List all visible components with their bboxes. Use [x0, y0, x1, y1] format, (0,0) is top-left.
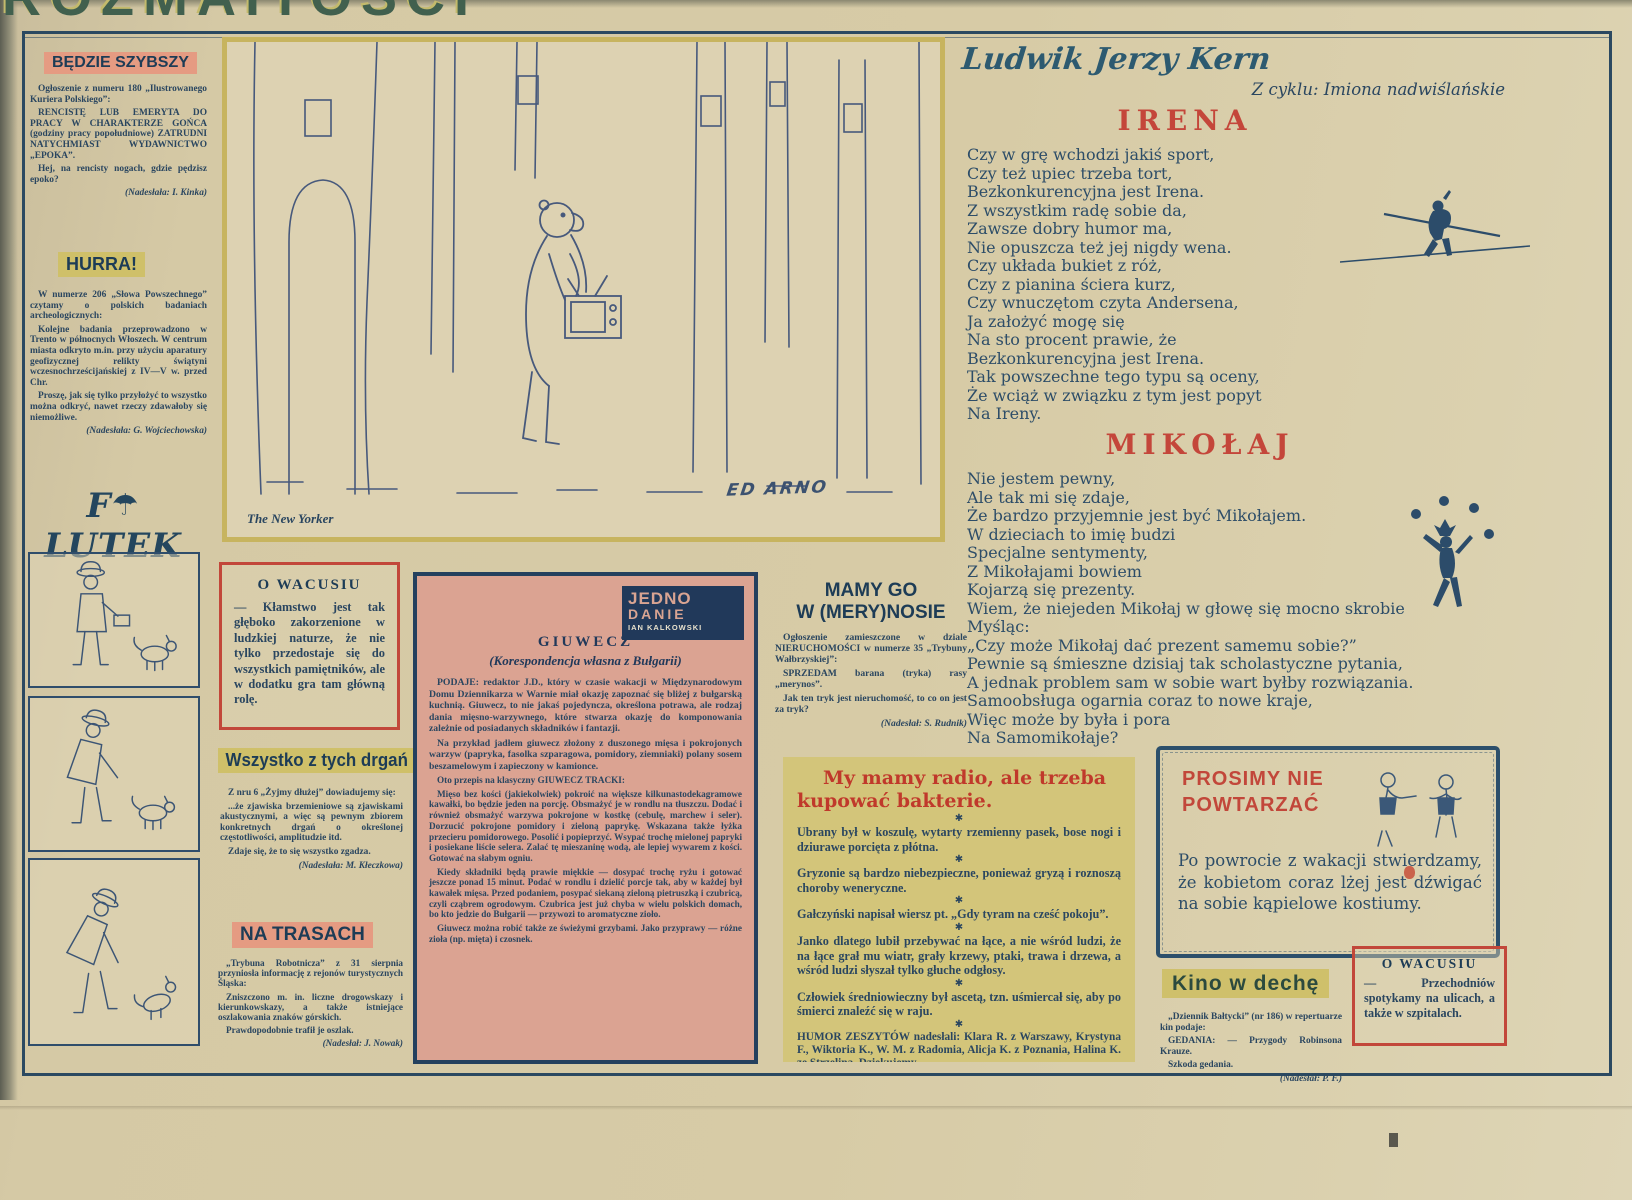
giuwecz-article-box: JEDNO DANIE IAN KALKOWSKI GIUWECZ (Kores… — [413, 572, 758, 1064]
comic-man-with-dog-illustration — [30, 554, 198, 686]
headline-band: NA TRASACH — [232, 922, 373, 948]
paragraph: Z nru 6 „Żyjmy dłużej” dowiadujemy się: — [220, 788, 403, 799]
kino-headline: Kino w dechę — [1162, 972, 1329, 996]
filutek-comic-panel-1 — [28, 552, 200, 688]
filutek-logo-text: F — [86, 486, 111, 526]
prosimy-text: Po powrocie z wakacji stwierdzamy, że ko… — [1178, 850, 1482, 915]
humor-item: Gałczyński napisał wiersz pt. „Gdy tyram… — [797, 907, 1121, 922]
mikolaj-poem-title: MIKOŁAJ — [965, 428, 1435, 461]
paragraph: GEDANIA: — Przygody Robinsona Krauze. — [1160, 1036, 1342, 1057]
scan-edge-left — [0, 0, 18, 1100]
asterisk-separator: ✱ — [797, 896, 1121, 906]
irena-poem-title: IRENA — [965, 104, 1405, 137]
paragraph: Zniszczono m. in. liczne drogowskazy i k… — [218, 992, 403, 1023]
cartoonist-signature: ED ARNO — [725, 477, 829, 500]
poem-author: Ludwik Jerzy Kern — [960, 42, 1272, 77]
badge-author: IAN KALKOWSKI — [628, 624, 738, 632]
radio-humor-box: My mamy radio, ale trzeba kupować bakter… — [783, 757, 1135, 1062]
badge-text: JEDNO — [628, 590, 738, 607]
paragraph: Hej, na rencisty nogach, gdzie pędzisz e… — [30, 164, 207, 185]
filutek-logo: F☂LUTEK — [24, 486, 202, 544]
badge-text: DANIE — [628, 607, 738, 621]
print-smudge — [1404, 866, 1415, 879]
paragraph: Na przykład jadłem giuwecz złożony z dus… — [429, 738, 742, 773]
paragraph: „Dziennik Bałtycki” (nr 186) w repertuar… — [1160, 1012, 1342, 1033]
recipe-heading: Oto przepis na klasyczny GIUWECZ TRACKI: — [429, 775, 742, 786]
paragraph: Kiedy składniki będą prawie miękkie — do… — [429, 867, 742, 921]
hurra-article: W numerze 206 „Słowa Powszechnego” czyta… — [30, 290, 207, 440]
masthead-title: ROZMAITOŚCI — [2, 0, 478, 27]
jedno-danie-badge: JEDNO DANIE IAN KALKOWSKI — [622, 586, 744, 640]
juggler-illustration — [1388, 492, 1513, 632]
humor-item: Ubrany był w koszulę, wytarty rzemienny … — [797, 825, 1121, 854]
paragraph: Mięso bez kości (jakiekolwiek) pokroić n… — [429, 789, 742, 864]
o-wacusiu-title: O WACUSIU — [234, 577, 385, 594]
paragraph: SPRZEDAM barana (tryka) rasy „merynos”. — [775, 668, 967, 690]
merynos-title: MAMY GO W (MERY)NOSIE — [775, 580, 967, 624]
filutek-comic-panel-2 — [28, 696, 200, 852]
paragraph: Prawdopodobnie trafił je oszlak. — [218, 1025, 403, 1035]
credit-line: (Nadesłała: M. Kłeczkowa) — [220, 861, 403, 872]
credit-line: (Nadesłała: I. Kinka) — [30, 188, 207, 199]
giuwecz-body: PODAJE: redaktor J.D., który w czasie wa… — [429, 677, 742, 772]
na-trasach-headline: NA TRASACH — [232, 922, 373, 948]
humor-item: Janko dlatego lubił przebywać na łące, a… — [797, 934, 1121, 978]
asterisk-separator: ✱ — [797, 979, 1121, 989]
na-trasach-article: „Trybuna Robotnicza” z 31 sierpnia przyn… — [218, 958, 403, 1052]
humor-credits: HUMOR ZESZYTÓW nadesłali: Klara R. z War… — [797, 1031, 1121, 1062]
merynos-article: MAMY GO W (MERY)NOSIE Ogłoszenie zamiesz… — [775, 580, 967, 732]
hurra-headline: HURRA! — [58, 252, 145, 277]
asterisk-separator: ✱ — [797, 814, 1121, 824]
asterisk-separator: ✱ — [797, 923, 1121, 933]
o-wacusiu-title: O WACUSIU — [1364, 956, 1495, 972]
o-wacusiu-box-2: O WACUSIU — Przechodniów spotykamy na ul… — [1352, 946, 1507, 1046]
newspaper-page: ROZMAITOŚCI BĘDZIE SZYBSZY Ogłoszenie z … — [0, 0, 1632, 1200]
o-wacusiu-box: O WACUSIU — Kłamstwo jest tak głęboko za… — [219, 562, 400, 730]
credit-line: (Nadesłał: P. F.) — [1160, 1074, 1342, 1085]
cartoon-frame: The New Yorker ED ARNO — [222, 37, 945, 542]
o-wacusiu-text: — Przechodniów spotykamy na ulicach, a t… — [1364, 976, 1495, 1021]
two-women-in-swimsuits-illustration — [1336, 760, 1486, 852]
paragraph: Zdaje się, że to się wszystko zgadza. — [220, 847, 403, 858]
paragraph: Kolejne badania przeprowadzono w Trento … — [30, 325, 207, 389]
paragraph: Proszę, jak się tylko przyłożyć to wszys… — [30, 391, 207, 423]
merynos-body: Ogłoszenie zamieszczone w dziale NIERUCH… — [775, 632, 967, 729]
asterisk-separator: ✱ — [797, 1020, 1121, 1030]
radio-box-title: My mamy radio, ale trzeba kupować bakter… — [797, 767, 1121, 813]
paragraph: PODAJE: redaktor J.D., który w czasie wa… — [429, 677, 742, 735]
humor-item: Gryzonie są bardzo niebezpieczne, poniew… — [797, 866, 1121, 895]
o-wacusiu-text: — Kłamstwo jest tak głęboko zakorzenione… — [234, 600, 385, 708]
bedzie-szybszy-headline: BĘDZIE SZYBSZY — [44, 52, 197, 74]
bear-carrying-tv-cartoon-illustration — [227, 42, 940, 497]
poem-cycle-label: Z cyklu: Imiona nadwiślańskie — [1000, 80, 1505, 99]
kino-article: „Dziennik Bałtycki” (nr 186) w repertuar… — [1160, 1012, 1342, 1088]
credit-line: (Nadesłał: J. Nowak) — [218, 1038, 403, 1048]
prosimy-title: PROSIMY NIE POWTARZAĆ — [1182, 766, 1372, 818]
paper-crease — [0, 1106, 1632, 1110]
page-mark — [1389, 1133, 1398, 1147]
asterisk-separator: ✱ — [797, 855, 1121, 865]
tightrope-walker-illustration — [1340, 182, 1530, 287]
paragraph: Giuwecz można robić także ze świeżymi gr… — [429, 923, 742, 944]
filutek-comic-panel-3 — [28, 858, 200, 1046]
comic-man-pointing-dog-illustration — [30, 698, 198, 850]
giuwecz-recipe: Oto przepis na klasyczny GIUWECZ TRACKI:… — [429, 775, 742, 945]
umbrella-icon: ☂ — [112, 488, 140, 523]
paragraph: „Trybuna Robotnicza” z 31 sierpnia przyn… — [218, 958, 403, 989]
masthead: ROZMAITOŚCI — [0, 0, 560, 27]
headline-band: HURRA! — [58, 252, 145, 277]
paragraph: RENCISTĘ LUB EMERYTA DO PRACY W CHARAKTE… — [30, 108, 207, 161]
credit-line: (Nadesłała: G. Wojciechowska) — [30, 426, 207, 437]
credit-line: (Nadesłał: S. Rudnik) — [775, 718, 967, 729]
drgania-headline: Wszystko z tych drgań — [218, 748, 428, 773]
bedzie-szybszy-article: Ogłoszenie z numeru 180 „Ilustrowanego K… — [30, 84, 207, 202]
paragraph: ...że zjawiska brzemieniowe są zjawiskam… — [220, 802, 403, 844]
headline-band: Wszystko z tych drgań — [218, 748, 415, 773]
paragraph: W numerze 206 „Słowa Powszechnego” czyta… — [30, 290, 207, 322]
paragraph: Ogłoszenie z numeru 180 „Ilustrowanego K… — [30, 84, 207, 105]
cartoon-caption: The New Yorker — [247, 511, 333, 527]
prosimy-box: PROSIMY NIE POWTARZAĆ Po powrocie z waka… — [1156, 746, 1500, 958]
paragraph: Szkoda gedania. — [1160, 1060, 1342, 1071]
giuwecz-subtitle: (Korespondencja własna z Bułgarii) — [429, 653, 742, 669]
humor-item: Człowiek średniowieczny był ascetą, tzn.… — [797, 990, 1121, 1019]
drgania-article: Z nru 6 „Żyjmy dłużej” dowiadujemy się: … — [220, 788, 403, 874]
headline-band: BĘDZIE SZYBSZY — [44, 52, 197, 74]
comic-man-crouching-dog-illustration — [30, 860, 198, 1044]
headline-band: Kino w dechę — [1162, 969, 1329, 998]
paragraph: Ogłoszenie zamieszczone w dziale NIERUCH… — [775, 632, 967, 665]
paragraph: Jak ten tryk jest nieruchomość, to co on… — [775, 693, 967, 715]
paragraph-lead: PODAJE: redaktor J.D., — [437, 677, 547, 688]
